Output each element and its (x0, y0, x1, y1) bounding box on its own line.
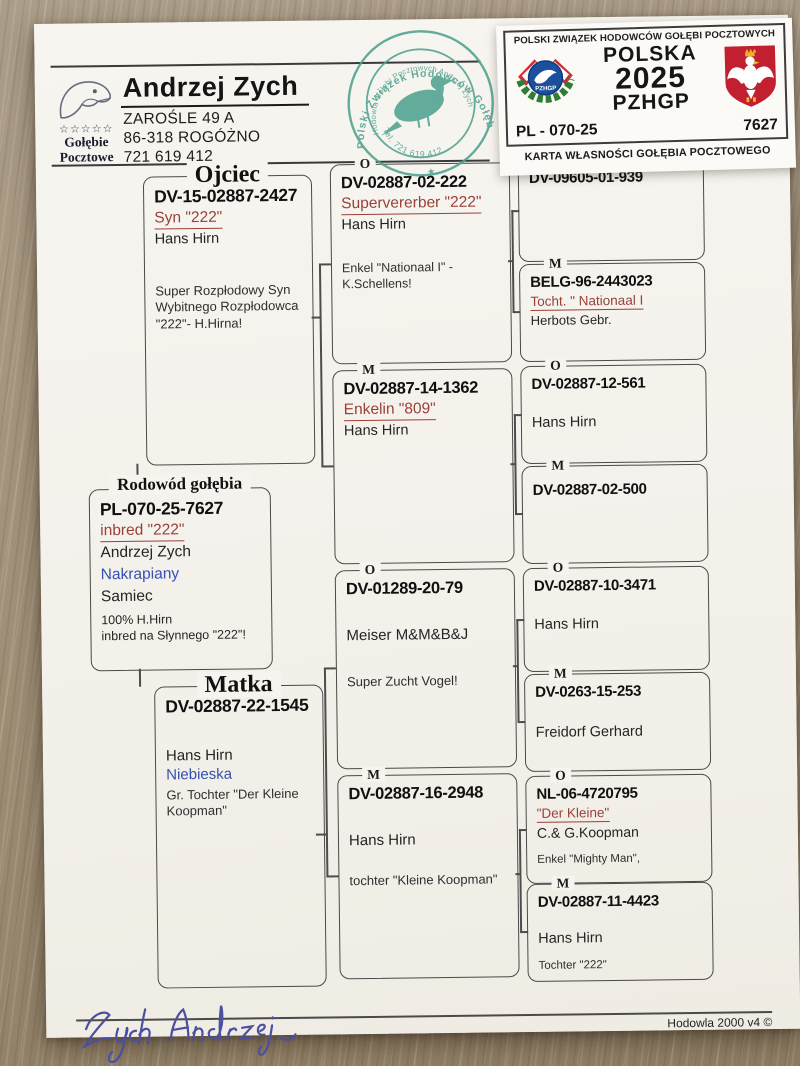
ring-number: DV-02887-11-4423 (538, 892, 703, 911)
ring-number: NL-06-4720795 (536, 784, 701, 803)
note-text: inbred na Słynnego "222"! (101, 627, 262, 645)
ring-number: DV-02887-10-3471 (534, 576, 699, 595)
pigeon-name: inbred "222" (100, 521, 185, 542)
stamp-ring-text: Polski Związek Hodowców Gołębi Pocztowyc… (321, 5, 497, 153)
card-org: PZHGP (579, 91, 724, 115)
note-text: Enkel "Mighty Man", (537, 851, 702, 867)
card-caption: KARTA WŁASNOŚCI GOŁĘBIA POCZTOWEGO (507, 144, 789, 164)
ring-number: DV-02887-16-2948 (348, 783, 507, 804)
desk-background: ☆☆☆☆☆ Gołębie Pocztowe Andrzej Zych ZARO… (0, 0, 800, 1066)
ring-number: DV-0263-15-253 (535, 682, 700, 701)
svg-text:Tel. 721 619 412: Tel. 721 619 412 (381, 119, 445, 166)
sex-label: M (362, 767, 385, 782)
pedigree-box-ggparent-6: M DV-0263-15-253 Freidorf Gerhard (524, 672, 711, 772)
sex-label: M (549, 665, 572, 680)
address-line-2: 86-318 ROGÓŻNO (123, 128, 260, 149)
breeder-name: C.& G.Koopman (537, 823, 702, 841)
pigeon-name: Tocht. " Nationaal I (530, 293, 643, 311)
pedigree-box-ggparent-7: O NL-06-4720795 "Der Kleine" C.& G.Koopm… (525, 774, 712, 884)
section-title-father: Ojciec (187, 161, 269, 188)
stamp-star: ★ (426, 166, 435, 177)
card-title-block: POLSKA 2025 PZHGP (578, 43, 724, 115)
logo-caption-1: Gołębie (51, 135, 121, 150)
connector-line (326, 875, 338, 877)
sex-label: O (548, 560, 569, 575)
svg-text:Polski Związek Hodowców Goł: Polski Związek Hodowców Gołębi Pocztowyc… (321, 5, 497, 153)
connector-line (139, 669, 141, 687)
owner-name: Andrzej Zych (100, 542, 261, 562)
ring-number: DV-02887-02-500 (533, 480, 698, 499)
pedigree-box-grandmother-paternal: M DV-02887-14-1362 Enkelin "809" Hans Hi… (332, 368, 514, 564)
color-description: Niebieska (166, 765, 314, 784)
note-text: Enkel "Nationaal I" - K.Schellens! (342, 259, 501, 292)
pedigree-box-grandmother-maternal: M DV-02887-16-2948 Hans Hirn tochter "Kl… (337, 773, 519, 979)
connector-line (519, 829, 522, 932)
breeder-name: Hans Hirn (349, 830, 508, 849)
pzhgp-emblem-icon: PZHGP (512, 47, 580, 117)
sex-label: O (550, 767, 571, 782)
sex-label: O (545, 358, 566, 373)
breeder-address: ZAROŚLE 49 A 86-318 ROGÓŻNO 721 619 412 (123, 109, 261, 167)
breeder-name: Hans Hirn (534, 615, 699, 633)
section-title-mother: Matka (196, 671, 280, 698)
ownership-card: POLSKI ZWIĄZEK HODOWCÓW GOŁĘBI POCZTOWYC… (496, 18, 796, 176)
note-text: Super Zucht Vogel! (347, 672, 506, 690)
color-description: Nakrapiany (101, 564, 262, 584)
handwritten-signature (71, 989, 314, 1066)
pigeon-name: "Der Kleine" (537, 805, 610, 823)
note-text: Tochter "222" (538, 957, 703, 973)
sex-label: M (551, 875, 574, 890)
breeder-name: Hans Hirn (166, 746, 314, 765)
sex-label: Samiec (101, 586, 262, 606)
pedigree-box-subject: Rodowód gołębia PL-070-25-7627 inbred "2… (89, 487, 273, 671)
breeder-name: Hans Hirn (155, 230, 303, 248)
card-district-code: PL - 070-25 (516, 121, 598, 141)
pedigree-box-ggparent-8: M DV-02887-11-4423 Hans Hirn Tochter "22… (527, 882, 714, 982)
breeder-name: Freidorf Gerhard (536, 723, 701, 741)
breeder-name: Meiser M&M&B&J (346, 625, 505, 644)
note-text: Gr. Tochter "Der Kleine Koopman" (166, 786, 314, 820)
emblem-label: PZHGP (535, 85, 556, 93)
sex-label: O (360, 562, 381, 577)
software-credit: Hodowla 2000 v4 © (566, 1015, 772, 1032)
card-frame: POLSKI ZWIĄZEK HODOWCÓW GOŁĘBI POCZTOWYC… (503, 23, 788, 147)
poland-eagle-icon (722, 42, 780, 110)
stamp-phone-text: Tel. 721 619 412 (381, 119, 445, 166)
ring-number: PL-070-25-7627 (100, 497, 261, 520)
note-text: tochter "Kleine Koopman" (349, 871, 508, 889)
connector-line (319, 263, 331, 265)
note-text: Super Rozpłodowy Syn Wybitnego Rozpłodow… (155, 282, 304, 333)
breeder-name: Hans Hirn (538, 929, 703, 947)
breeder-name: Andrzej Zych (121, 71, 309, 108)
pigeon-name: Syn "222" (154, 209, 222, 230)
breeder-name: Hans Hirn (532, 413, 697, 431)
logo-caption-2: Pocztowe (52, 150, 122, 165)
sex-label: M (544, 256, 567, 271)
connector-line (516, 619, 519, 722)
address-line-1: ZAROŚLE 49 A (123, 109, 260, 130)
pigeon-head-icon (55, 77, 118, 120)
pedigree-box-father: Ojciec DV-15-02887-2427 Syn "222" Hans H… (143, 175, 316, 466)
ring-number: DV-02887-12-561 (531, 374, 696, 393)
note-text: 100% H.Hirn (101, 610, 262, 628)
breeder-name: Hans Hirn (341, 215, 500, 233)
connector-line (319, 264, 323, 467)
connector-line (324, 667, 336, 669)
sex-label: M (357, 362, 380, 377)
ring-number: BELG-96-2443023 (530, 272, 695, 291)
pigeon-name: Enkelin "809" (344, 400, 436, 421)
breeder-name: Herbots Gebr. (531, 311, 696, 328)
breeder-stamp: Polski Związek Hodowców Gołębi Pocztowyc… (321, 5, 522, 206)
sex-label: M (546, 457, 569, 472)
connector-line (321, 465, 333, 467)
pedigree-box-mother: Matka DV-02887-22-1545 Hans Hirn Niebies… (154, 685, 327, 989)
pedigree-box-ggparent-2: M BELG-96-2443023 Tocht. " Nationaal I H… (519, 262, 706, 362)
pedigree-box-ggparent-3: O DV-02887-12-561 Hans Hirn (520, 364, 707, 464)
ring-number: DV-01289-20-79 (346, 578, 505, 599)
pedigree-box-ggparent-5: O DV-02887-10-3471 Hans Hirn (523, 566, 710, 672)
section-title-subject: Rodowód gołębia (109, 473, 250, 494)
card-ring-number: 7627 (743, 116, 778, 135)
breeder-name: Hans Hirn (344, 421, 503, 439)
pedigree-box-ggparent-4: M DV-02887-02-500 (521, 464, 708, 564)
breeder-logo: ☆☆☆☆☆ Gołębie Pocztowe (51, 77, 122, 165)
ring-number: DV-02887-14-1362 (343, 378, 502, 399)
pedigree-box-grandfather-maternal: O DV-01289-20-79 Meiser M&M&B&J Super Zu… (335, 568, 517, 769)
